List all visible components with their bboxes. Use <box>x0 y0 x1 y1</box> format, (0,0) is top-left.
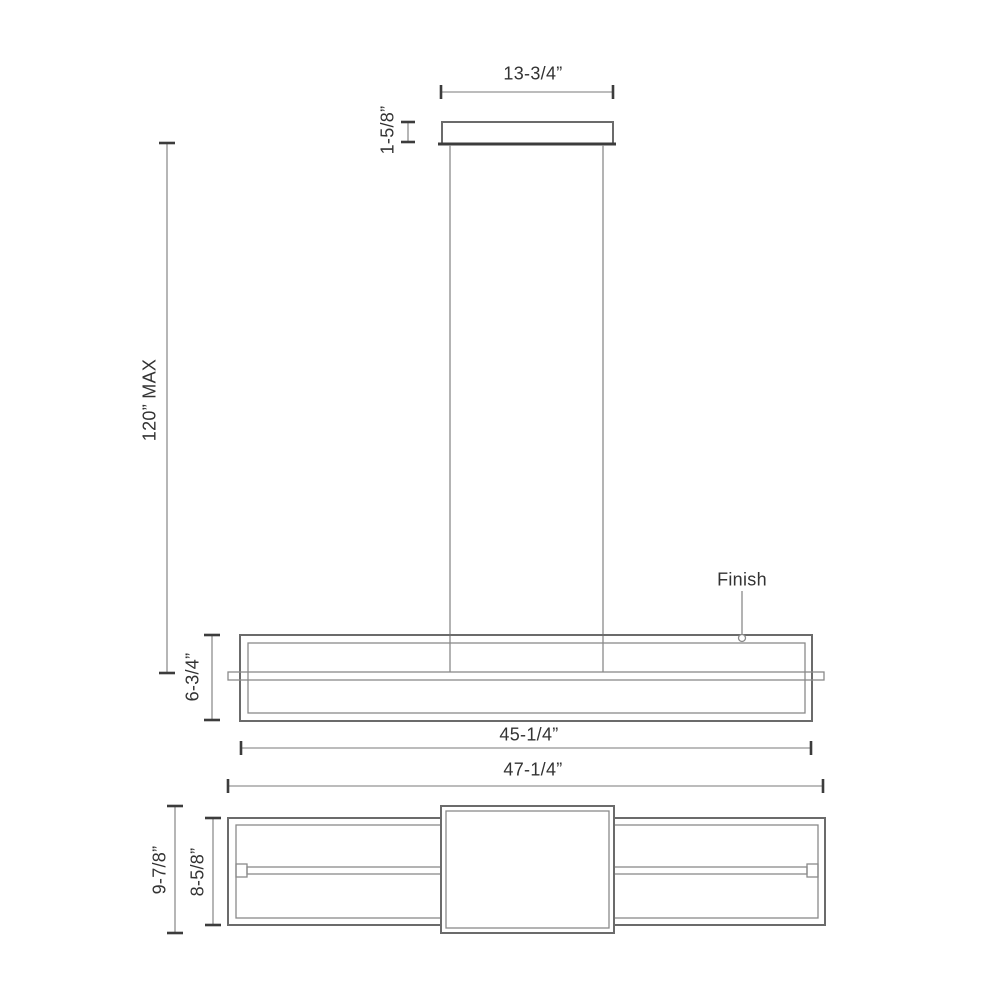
dimension-drawing-canvas: 13-3/4” 1-5/8” 120” MAX Finish 6-3/4” 45… <box>0 0 1000 1000</box>
overall-depth-label: 9-7/8” <box>150 846 171 895</box>
fixture-bottom-view <box>228 806 825 933</box>
max-drop-dimension <box>159 143 175 673</box>
canopy-height-label: 1-5/8” <box>378 106 399 155</box>
overall-length-dimension <box>228 779 823 793</box>
finish-callout-point <box>739 635 746 642</box>
fixture-height-dimension <box>204 635 220 720</box>
overall-length-label: 47-1/4” <box>503 760 562 781</box>
led-tube-endcap-right <box>807 864 818 877</box>
finish-callout-label: Finish <box>717 570 767 591</box>
canopy-width-dimension <box>441 85 613 99</box>
body-length-label: 45-1/4” <box>499 725 558 746</box>
fixture-center-bar <box>228 672 824 680</box>
led-tube-endcap-left <box>236 864 247 877</box>
canopy-width-label: 13-3/4” <box>503 64 562 85</box>
canopy-outline <box>442 122 613 144</box>
fixture-front-view <box>228 635 824 721</box>
canopy-height-dimension <box>401 122 415 142</box>
max-drop-label: 120” MAX <box>140 359 161 441</box>
body-depth-label: 8-5/8” <box>188 848 209 897</box>
center-housing-outer <box>441 806 614 933</box>
finish-callout-leader <box>739 591 746 642</box>
fixture-height-label: 6-3/4” <box>183 653 204 702</box>
fixture-inner-frame <box>248 643 805 713</box>
fixture-outer-frame <box>240 635 812 721</box>
